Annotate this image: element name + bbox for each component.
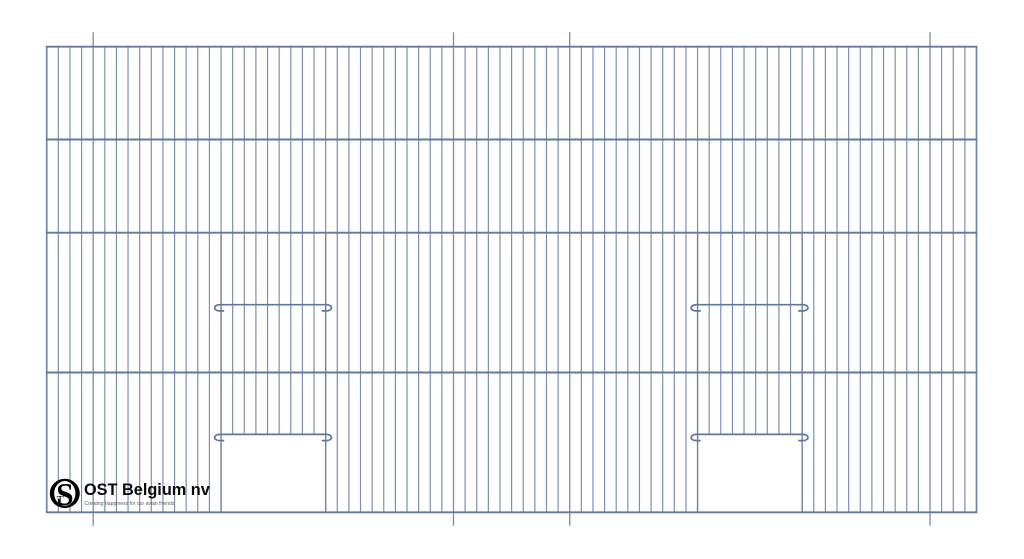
svg-text:T: T — [57, 494, 64, 506]
svg-text:Creating happiness for our avi: Creating happiness for our avian friends — [84, 501, 174, 507]
svg-text:OST Belgium nv: OST Belgium nv — [84, 480, 210, 499]
